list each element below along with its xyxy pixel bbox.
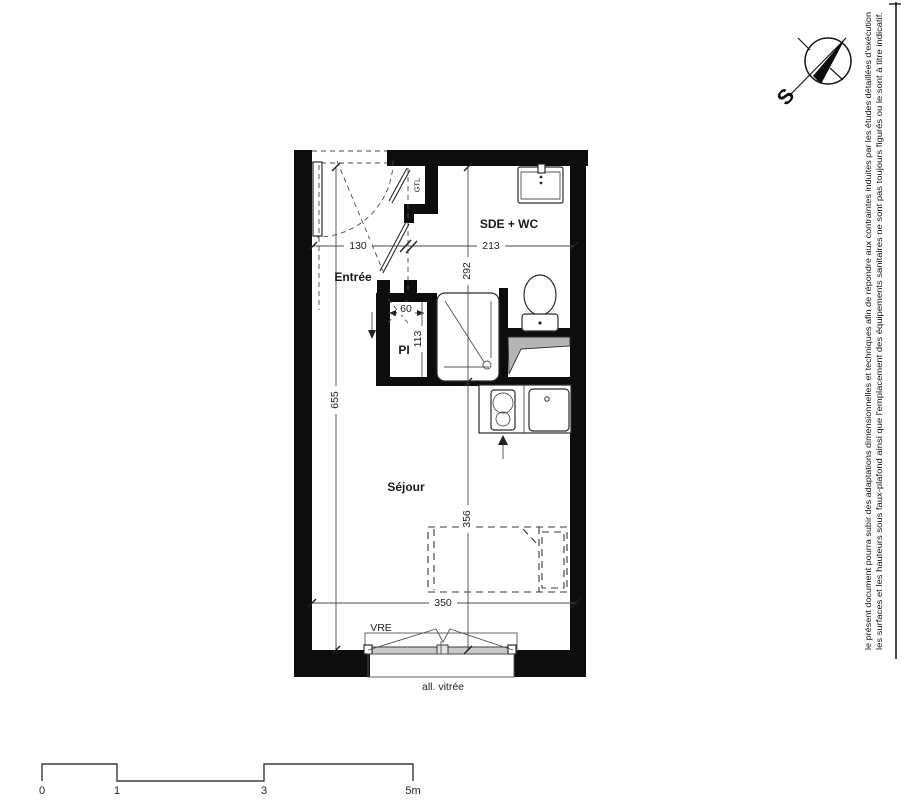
kitchen-arrowhead [498,435,508,445]
dim-pi-height: 113 [412,330,424,347]
pi-shower-divider [427,293,437,386]
kitchen-sink [529,389,569,431]
scale-bar: 0 1 3 5m [39,764,421,797]
bed [428,527,567,592]
washbasin [518,164,563,203]
compass: S [773,37,851,110]
dim-total-height: 655 [329,391,341,409]
bed-side-unit [542,532,564,588]
entry-door-swing-arc [317,161,393,237]
bed-fold-corner [523,529,538,545]
gtl-label: GTL [413,178,422,193]
pi-pilaster-left [377,280,390,294]
sde-door-jamb [404,209,414,223]
toilet-button [538,321,541,324]
duct-wall-left [499,288,508,386]
wall-top [387,150,588,166]
toilet-bowl [524,275,556,315]
wall-left [294,150,312,677]
entry-swing-chord [337,161,383,271]
wall-bottom-left [294,650,370,677]
pi-entry-arrowhead [368,330,376,339]
label-allege-vitree: all. vitrée [422,681,464,693]
cooktop [491,390,515,430]
dim-pi-width: 60 [400,303,412,315]
pi-pilaster-right [404,280,417,294]
scale-tick-5m: 5m [405,785,420,797]
faucet-dot-2 [540,182,543,185]
scale-tick-1: 1 [114,785,120,797]
dim-sejour-height: 356 [461,510,473,528]
dim-entree-width: 130 [349,240,367,252]
dim-sde-height: 292 [461,262,473,280]
entry-door-leaf [313,162,322,236]
scale-tick-0: 0 [39,785,45,797]
scale-tick-3: 3 [261,785,267,797]
faucet-icon [538,164,545,173]
margin-note-line1: le présent document pourra subir des ada… [864,12,873,650]
compass-axis-line [789,38,846,96]
dim-window-width: 350 [434,597,452,609]
compass-tick-se [830,68,843,80]
window-bay [364,629,517,677]
duct-shaft [508,337,570,377]
balcony-slab [368,654,514,677]
faucet-dot-1 [540,176,543,179]
compass-south-label: S [773,84,800,110]
floor-plan-drawing: GTL [0,0,901,800]
kitchenette [479,385,571,459]
toilet [522,275,558,331]
scale-bar-line [42,764,413,781]
wall-right [570,150,586,677]
margin-note-line2: les surfaces et les hauteurs sous faux-p… [875,12,884,650]
margin-notes: le présent document pourra subir des ada… [864,2,901,659]
label-vre: VRE [370,622,392,634]
label-pi: PI [398,343,409,357]
bed-outline [428,527,567,592]
pi-wall-left [376,293,390,386]
label-entree: Entrée [334,270,372,284]
wall-bottom-right [514,650,586,677]
dim-sde-width: 213 [482,240,500,252]
floor-plan-sheet: GTL [0,0,901,800]
compass-needle [813,37,846,84]
window-center-rail [437,645,448,654]
label-sejour: Séjour [387,480,425,494]
compass-tick-nw [798,38,810,50]
label-sde-wc: SDE + WC [480,217,539,231]
